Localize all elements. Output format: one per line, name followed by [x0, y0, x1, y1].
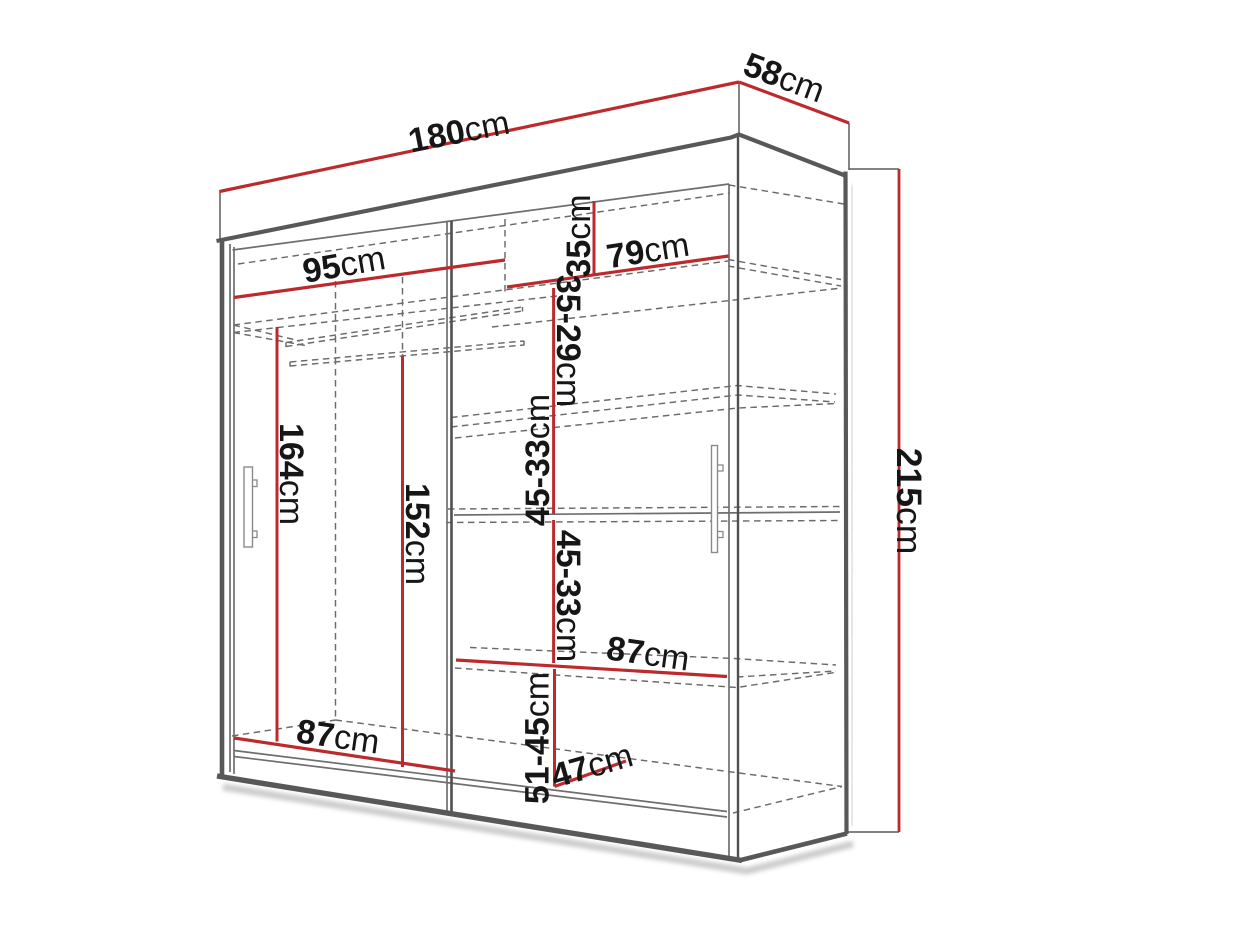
- svg-text:152cm: 152cm: [398, 483, 436, 585]
- svg-text:45-33cm: 45-33cm: [519, 394, 557, 526]
- svg-text:215cm: 215cm: [889, 448, 929, 555]
- svg-text:164cm: 164cm: [272, 423, 310, 525]
- svg-text:35cm: 35cm: [560, 194, 598, 277]
- svg-text:35-29cm: 35-29cm: [549, 275, 587, 407]
- svg-text:51-45cm: 51-45cm: [519, 672, 557, 804]
- svg-text:45-33cm: 45-33cm: [549, 530, 587, 662]
